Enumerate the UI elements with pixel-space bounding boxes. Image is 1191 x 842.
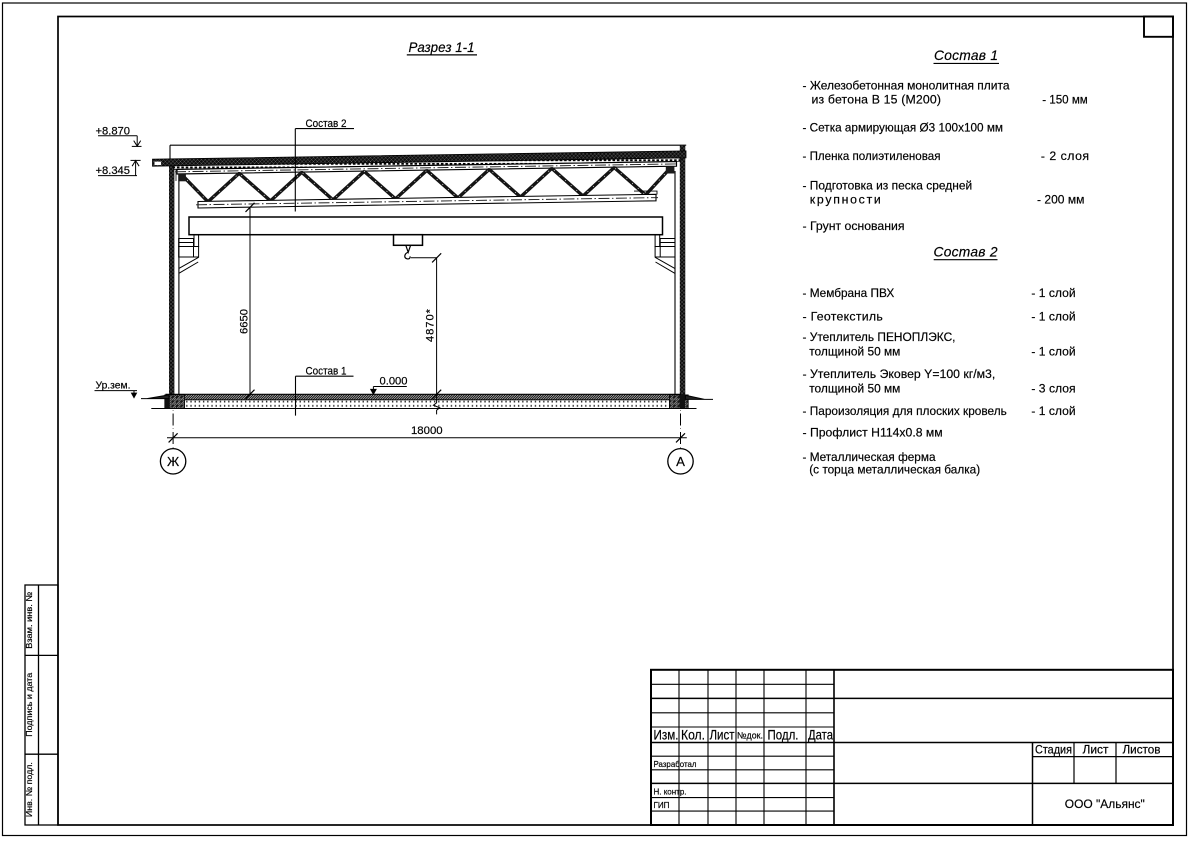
svg-text:Лист: Лист bbox=[1083, 743, 1110, 756]
svg-text:18000: 18000 bbox=[411, 425, 443, 437]
svg-text:из бетона В 15 (М200): из бетона В 15 (М200) bbox=[812, 93, 942, 107]
svg-text:крупности: крупности bbox=[810, 193, 881, 207]
svg-text:А: А bbox=[676, 454, 685, 469]
svg-text:- Геотекстиль: - Геотекстиль bbox=[803, 310, 883, 324]
svg-text:0.000: 0.000 bbox=[380, 376, 408, 388]
svg-text:(с торца металлическая балка): (с торца металлическая балка) bbox=[809, 463, 980, 477]
svg-text:- Грунт основания: - Грунт основания bbox=[803, 219, 905, 233]
svg-text:- Утеплитель ПЕНОПЛЭКС,: - Утеплитель ПЕНОПЛЭКС, bbox=[803, 330, 956, 344]
svg-text:- Профлист Н114х0.8 мм: - Профлист Н114х0.8 мм bbox=[803, 426, 943, 440]
svg-text:- Мембрана ПВХ: - Мембрана ПВХ bbox=[803, 286, 895, 300]
svg-text:Дата: Дата bbox=[808, 728, 833, 743]
svg-text:- 3 слоя: - 3 слоя bbox=[1031, 381, 1075, 395]
svg-text:- Сетка армирующая Ø3 100х100: - Сетка армирующая Ø3 100х100 мм bbox=[803, 121, 1004, 135]
svg-text:- Пароизоляция для плоских кро: - Пароизоляция для плоских кровель bbox=[803, 404, 1007, 418]
svg-text:толщиной 50 мм: толщиной 50 мм bbox=[809, 344, 900, 358]
svg-text:+8.345: +8.345 bbox=[95, 165, 130, 177]
svg-text:- Железобетонная монолитная п: - Железобетонная монолитная плита bbox=[803, 79, 1010, 93]
svg-text:Взам. инв. №: Взам. инв. № bbox=[24, 592, 34, 649]
svg-text:Состав 1: Состав 1 bbox=[306, 365, 347, 377]
svg-text:- 1 слой: - 1 слой bbox=[1031, 404, 1075, 418]
svg-text:- 2 слоя: - 2 слоя bbox=[1041, 149, 1089, 163]
svg-text:- 1 слой: - 1 слой bbox=[1031, 310, 1075, 324]
svg-text:толщиной 50 мм: толщиной 50 мм bbox=[809, 381, 900, 395]
svg-text:- 1 слой: - 1 слой bbox=[1031, 344, 1075, 358]
svg-text:Состав 2: Состав 2 bbox=[934, 244, 998, 259]
svg-text:Изм.: Изм. bbox=[654, 728, 679, 743]
svg-text:Разработал: Разработал bbox=[654, 759, 697, 769]
svg-text:6650: 6650 bbox=[238, 309, 250, 334]
svg-text:Стадия: Стадия bbox=[1035, 743, 1072, 756]
svg-text:- 1 слой: - 1 слой bbox=[1031, 286, 1075, 300]
svg-text:- Пленка полиэтиленовая: - Пленка полиэтиленовая bbox=[803, 149, 941, 163]
svg-text:- Подготовка из песка средней: - Подготовка из песка средней bbox=[803, 178, 973, 192]
svg-text:Ж: Ж bbox=[167, 454, 179, 469]
svg-text:ГИП: ГИП bbox=[654, 800, 670, 810]
svg-text:4870*: 4870* bbox=[425, 308, 437, 342]
svg-text:Листов: Листов bbox=[1123, 743, 1161, 756]
svg-text:- 200 мм: - 200 мм bbox=[1037, 193, 1084, 207]
svg-text:Инв. № подл.: Инв. № подл. bbox=[24, 762, 34, 817]
svg-text:ООО "Альянс": ООО "Альянс" bbox=[1065, 797, 1145, 811]
svg-text:Н. контр.: Н. контр. bbox=[654, 786, 687, 796]
svg-text:Кол.: Кол. bbox=[681, 728, 705, 743]
svg-text:Ур.зем.: Ур.зем. bbox=[96, 381, 131, 392]
svg-text:Состав 1: Состав 1 bbox=[934, 48, 998, 63]
svg-text:Лист: Лист bbox=[710, 728, 736, 743]
svg-text:- 150 мм: - 150 мм bbox=[1042, 93, 1088, 107]
svg-text:Разрез 1-1: Разрез 1-1 bbox=[409, 40, 475, 56]
svg-text:Состав 2: Состав 2 bbox=[306, 118, 347, 130]
svg-text:Подл.: Подл. bbox=[768, 728, 799, 743]
svg-text:- Утеплитель Эковер Y=100 кг/м: - Утеплитель Эковер Y=100 кг/м3, bbox=[803, 367, 996, 381]
svg-text:№док.: №док. bbox=[737, 731, 763, 741]
svg-text:+8.870: +8.870 bbox=[95, 125, 130, 137]
svg-text:Подпись и дата: Подпись и дата bbox=[24, 673, 34, 737]
